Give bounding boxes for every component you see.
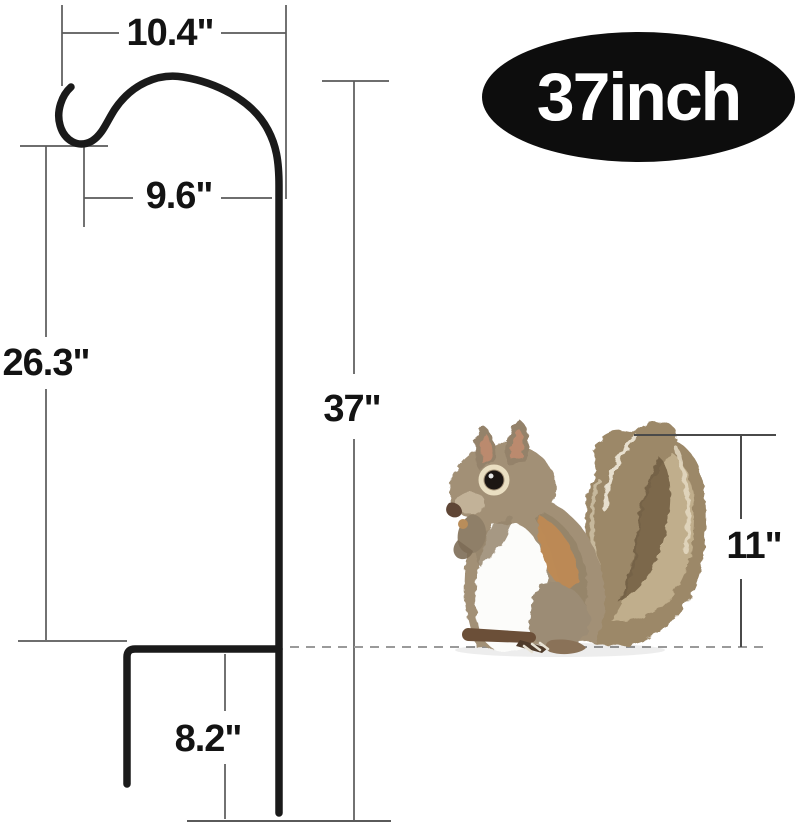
squirrel-eye bbox=[485, 471, 504, 490]
ground-fork-prong bbox=[127, 649, 279, 784]
dim-label-upper-height: 26.3" bbox=[3, 344, 90, 382]
dim-label-hook-opening: 9.6" bbox=[146, 177, 213, 215]
dim-label-hook-width: 10.4" bbox=[127, 14, 214, 52]
dim-label-total-height: 37" bbox=[323, 390, 380, 428]
size-badge-label: 37inch bbox=[537, 63, 740, 131]
squirrel-image bbox=[446, 420, 706, 657]
dim-label-stake-depth: 8.2" bbox=[175, 720, 242, 758]
size-badge: 37inch bbox=[482, 32, 795, 162]
product-image: 37inch 10.4" 9.6" 26.3" 37" 11" 8.2" bbox=[0, 0, 800, 828]
dim-label-squirrel-height: 11" bbox=[726, 527, 781, 565]
